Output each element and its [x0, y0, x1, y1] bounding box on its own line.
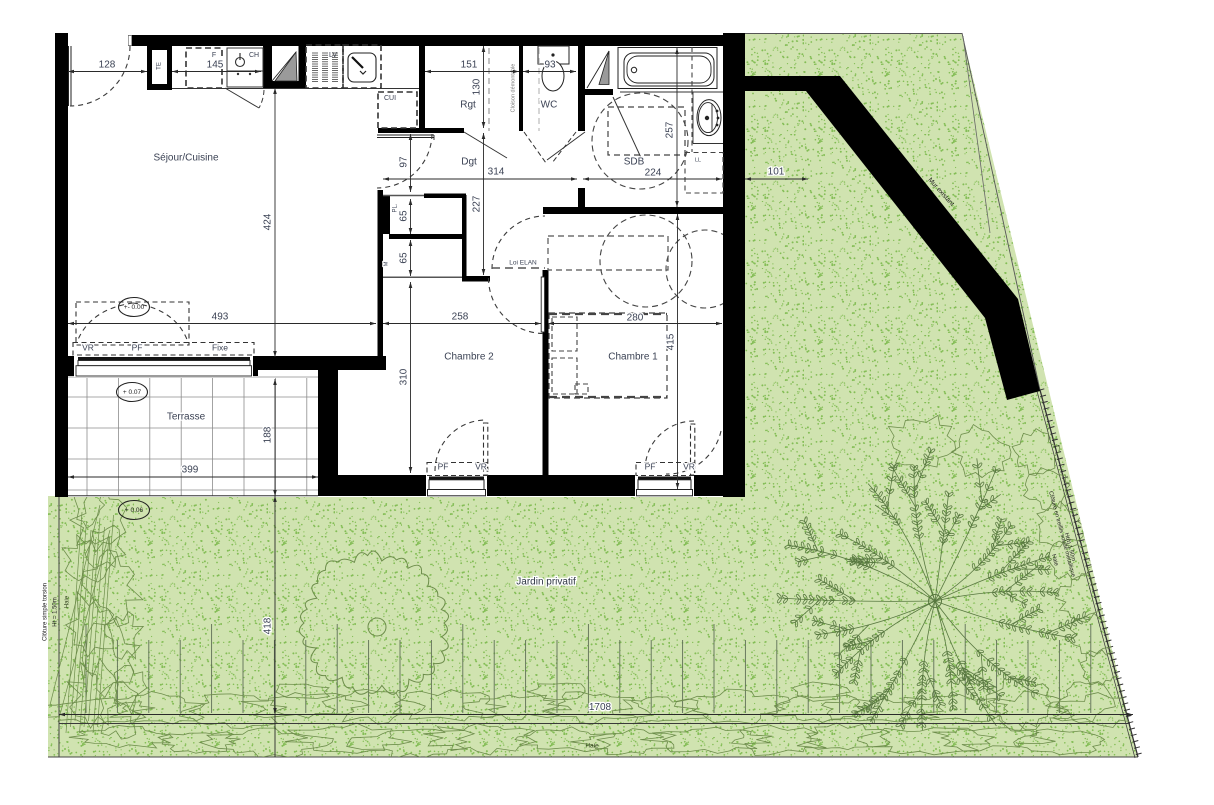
svg-text:224: 224 [645, 168, 662, 179]
svg-text:415: 415 [666, 333, 677, 350]
svg-text:SDB: SDB [624, 157, 645, 168]
svg-text:493: 493 [212, 312, 229, 323]
svg-text:280: 280 [627, 313, 644, 324]
svg-text:257: 257 [665, 121, 676, 138]
svg-text:PF: PF [438, 461, 449, 471]
svg-text:CUI: CUI [384, 95, 396, 102]
svg-text:65: 65 [399, 210, 410, 222]
svg-text:TE: TE [157, 62, 163, 70]
svg-text:310: 310 [399, 368, 410, 385]
svg-text:Chambre 1: Chambre 1 [608, 352, 658, 363]
svg-text:Chambre 2: Chambre 2 [444, 352, 494, 363]
svg-text:Dgt: Dgt [461, 157, 477, 168]
svg-text:VR: VR [82, 342, 94, 352]
svg-text:65: 65 [399, 252, 410, 264]
svg-text:Terrasse: Terrasse [167, 412, 206, 423]
svg-text:Jardin privatif: Jardin privatif [516, 577, 576, 588]
svg-text:97: 97 [399, 156, 410, 168]
svg-text:101: 101 [768, 167, 785, 178]
svg-text:Fixe: Fixe [212, 342, 228, 352]
svg-text:PF: PF [132, 342, 143, 352]
svg-text:227: 227 [472, 195, 483, 212]
svg-text:Haie: Haie [65, 595, 71, 608]
svg-text:128: 128 [99, 60, 116, 71]
svg-text:+ 0.06: + 0.06 [125, 507, 144, 514]
svg-text:F: F [212, 52, 216, 59]
svg-text:Séjour/Cuisine: Séjour/Cuisine [153, 153, 218, 164]
svg-text:130: 130 [472, 78, 483, 95]
svg-text:418: 418 [263, 617, 274, 634]
svg-text:Ht = 1.50m: Ht = 1.50m [53, 597, 59, 627]
svg-text:Clôture simple torsion: Clôture simple torsion [43, 583, 49, 641]
svg-text:VR: VR [475, 461, 487, 471]
svg-text:WC: WC [541, 100, 558, 111]
svg-text:258: 258 [452, 312, 469, 323]
svg-text:+ 0.07: + 0.07 [123, 389, 142, 396]
svg-text:Rgt: Rgt [460, 100, 476, 111]
svg-text:151: 151 [461, 60, 478, 71]
svg-text:LL: LL [695, 157, 701, 163]
svg-text:M: M [383, 261, 389, 266]
svg-text:93: 93 [544, 60, 556, 71]
svg-text:PL.: PL. [393, 203, 399, 212]
svg-text:399: 399 [182, 465, 199, 476]
svg-text:424: 424 [263, 213, 274, 230]
svg-text:Loi ELAN: Loi ELAN [509, 260, 537, 267]
svg-text:PF: PF [645, 461, 656, 471]
svg-text:VR: VR [683, 461, 695, 471]
svg-text:CH: CH [249, 52, 259, 59]
svg-text:Haie: Haie [585, 743, 599, 750]
svg-text:145: 145 [207, 60, 224, 71]
svg-text:188: 188 [263, 426, 274, 443]
svg-text:314: 314 [488, 167, 505, 178]
svg-text:+- 0.00: +- 0.00 [124, 304, 145, 311]
svg-text:1708: 1708 [589, 702, 612, 713]
